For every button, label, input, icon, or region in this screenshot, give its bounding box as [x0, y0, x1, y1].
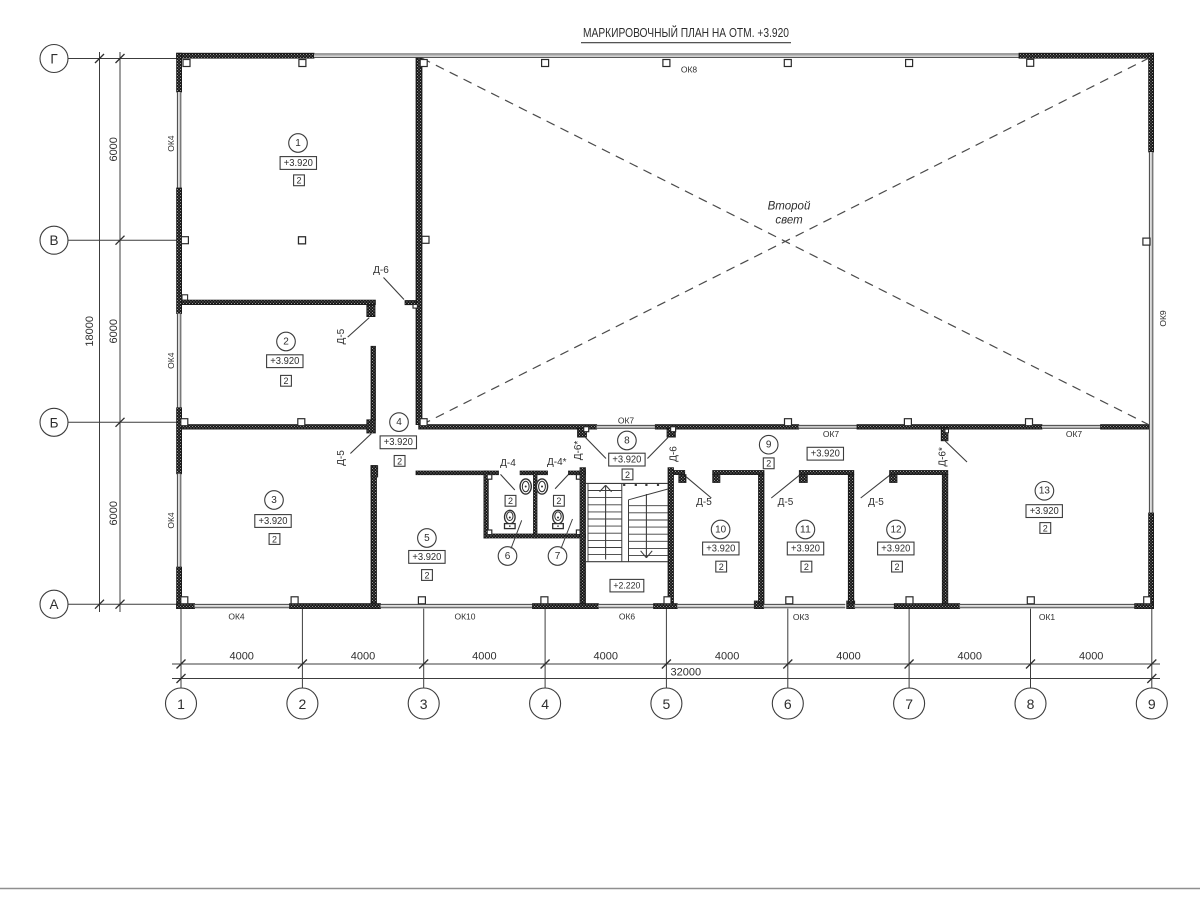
svg-text:Д-5: Д-5: [868, 497, 884, 508]
svg-text:Второй: Второй: [768, 201, 811, 213]
svg-text:13: 13: [1039, 486, 1050, 497]
svg-text:8: 8: [624, 435, 630, 446]
svg-text:8: 8: [1027, 696, 1035, 712]
svg-text:2: 2: [508, 496, 513, 506]
svg-text:ОК6: ОК6: [619, 612, 636, 622]
svg-text:32000: 32000: [671, 666, 702, 678]
svg-text:+3.920: +3.920: [791, 543, 820, 554]
svg-text:9: 9: [766, 440, 772, 451]
svg-text:Д-5: Д-5: [336, 328, 347, 344]
svg-text:+3.920: +3.920: [270, 356, 299, 367]
svg-text:2: 2: [1043, 523, 1048, 533]
svg-text:ОК4: ОК4: [166, 512, 176, 529]
svg-text:Д-5: Д-5: [336, 450, 347, 466]
svg-text:Б: Б: [50, 415, 59, 430]
svg-text:5: 5: [663, 696, 671, 712]
svg-text:12: 12: [891, 524, 902, 535]
svg-text:6000: 6000: [108, 137, 120, 161]
svg-text:4000: 4000: [472, 651, 496, 663]
svg-text:4000: 4000: [351, 651, 375, 663]
svg-text:+3.920: +3.920: [1030, 506, 1059, 517]
svg-text:Д-5: Д-5: [778, 497, 794, 508]
svg-text:ОК4: ОК4: [166, 135, 176, 152]
svg-text:МАРКИРОВОЧНЫЙ ПЛАН НА ОТМ. +3.: МАРКИРОВОЧНЫЙ ПЛАН НА ОТМ. +3.920: [583, 25, 789, 40]
svg-text:Д-5: Д-5: [696, 497, 712, 508]
svg-text:ОК4: ОК4: [228, 612, 245, 622]
svg-text:А: А: [49, 597, 58, 612]
svg-text:6000: 6000: [108, 319, 120, 343]
svg-text:18000: 18000: [84, 316, 96, 347]
svg-text:+3.920: +3.920: [881, 543, 910, 554]
svg-text:11: 11: [800, 524, 811, 535]
svg-text:2: 2: [272, 534, 277, 544]
svg-text:1: 1: [177, 696, 185, 712]
svg-text:2: 2: [719, 562, 724, 572]
svg-text:7: 7: [905, 696, 913, 712]
svg-text:ОК4: ОК4: [166, 352, 176, 369]
svg-text:2: 2: [804, 562, 809, 572]
svg-text:+3.920: +3.920: [259, 516, 288, 527]
svg-text:9: 9: [1148, 696, 1156, 712]
svg-text:2: 2: [397, 456, 402, 466]
svg-text:2: 2: [894, 562, 899, 572]
svg-text:В: В: [49, 233, 58, 248]
svg-text:ОК3: ОК3: [793, 612, 810, 622]
svg-text:2: 2: [625, 470, 630, 480]
svg-text:ОК7: ОК7: [1066, 429, 1083, 439]
svg-text:3: 3: [420, 696, 428, 712]
svg-text:ОК1: ОК1: [1039, 612, 1056, 622]
svg-text:4: 4: [541, 696, 549, 712]
svg-text:6000: 6000: [108, 501, 120, 525]
svg-text:Д-4: Д-4: [500, 458, 516, 469]
svg-text:10: 10: [715, 524, 726, 535]
svg-text:2: 2: [299, 696, 307, 712]
svg-text:6: 6: [505, 551, 511, 562]
svg-text:4000: 4000: [715, 651, 739, 663]
svg-text:Г: Г: [50, 52, 58, 67]
svg-text:ОК7: ОК7: [823, 429, 840, 439]
svg-text:2: 2: [283, 376, 288, 386]
svg-text:Д-6*: Д-6*: [937, 447, 948, 467]
svg-text:6: 6: [784, 696, 792, 712]
svg-text:ОК7: ОК7: [618, 416, 635, 426]
svg-text:4000: 4000: [594, 651, 618, 663]
svg-text:2: 2: [283, 336, 289, 347]
svg-text:4000: 4000: [836, 651, 860, 663]
svg-text:ОК8: ОК8: [681, 65, 698, 75]
svg-text:2: 2: [424, 570, 429, 580]
svg-text:1: 1: [295, 138, 301, 149]
svg-text:4: 4: [396, 417, 402, 428]
svg-text:+3.920: +3.920: [612, 455, 641, 466]
svg-text:7: 7: [555, 551, 561, 562]
svg-text:+3.920: +3.920: [384, 437, 413, 448]
svg-text:+3.920: +3.920: [412, 552, 441, 563]
svg-text:+3.920: +3.920: [706, 543, 735, 554]
svg-text:4000: 4000: [229, 651, 253, 663]
svg-text:+3.920: +3.920: [811, 449, 840, 460]
svg-text:ОК10: ОК10: [454, 612, 475, 622]
svg-text:4000: 4000: [1079, 651, 1103, 663]
svg-text:ОК9: ОК9: [1158, 310, 1168, 327]
svg-text:3: 3: [271, 495, 277, 506]
svg-text:2: 2: [766, 459, 771, 469]
svg-text:+2.220: +2.220: [613, 581, 640, 592]
svg-text:2: 2: [296, 176, 301, 186]
svg-text:Д-4*: Д-4*: [547, 457, 567, 468]
svg-text:свет: свет: [775, 215, 803, 227]
svg-text:5: 5: [424, 533, 430, 544]
svg-text:2: 2: [556, 496, 561, 506]
svg-text:Д-6: Д-6: [373, 265, 389, 276]
svg-text:4000: 4000: [958, 651, 982, 663]
svg-text:Д-6*: Д-6*: [573, 441, 584, 461]
svg-text:+3.920: +3.920: [284, 158, 313, 169]
svg-text:Д-6: Д-6: [669, 446, 680, 462]
